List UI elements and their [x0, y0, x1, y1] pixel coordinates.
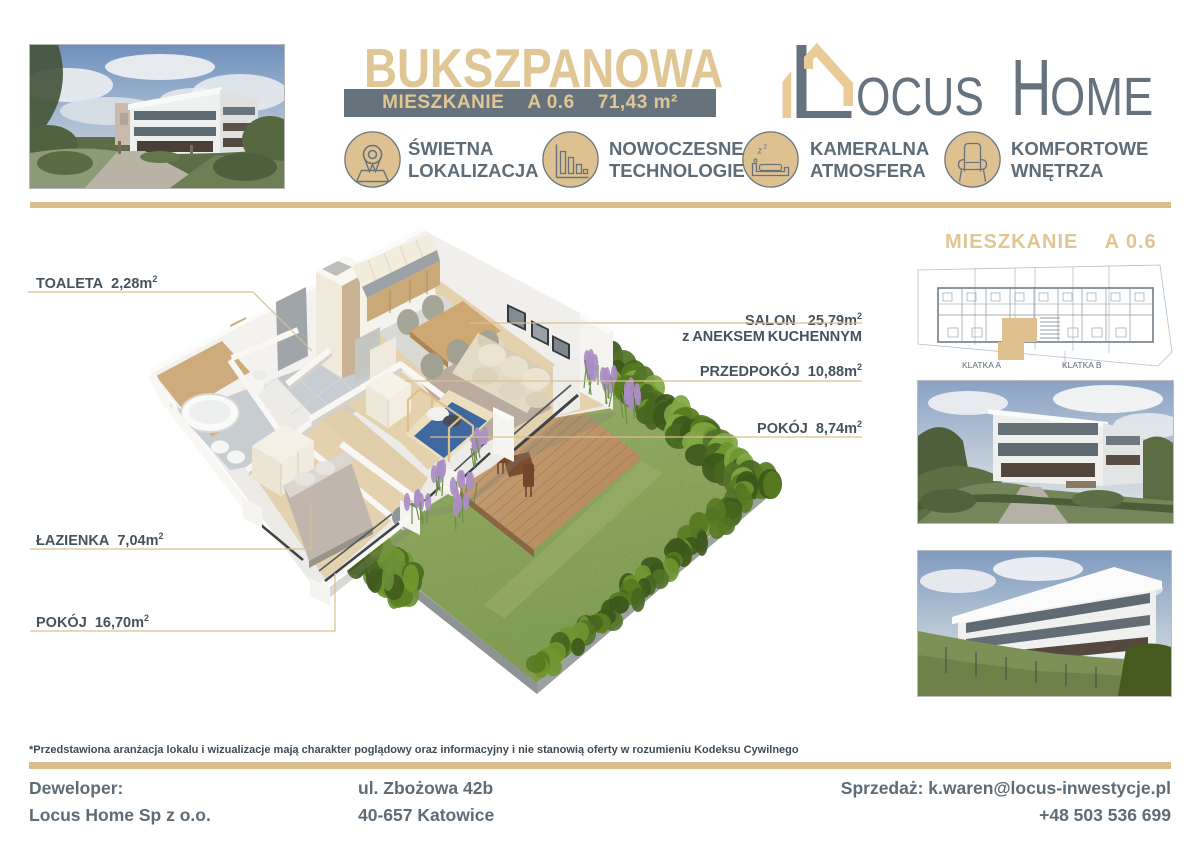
svg-text:KLATKA A: KLATKA A — [962, 360, 1001, 370]
svg-text:KLATKA B: KLATKA B — [1062, 360, 1102, 370]
svg-text:OME: OME — [1050, 66, 1153, 125]
svg-text:z: z — [764, 144, 768, 151]
svg-text:z: z — [758, 146, 763, 156]
svg-text:OCUS: OCUS — [856, 67, 984, 125]
svg-text:H: H — [1011, 42, 1051, 125]
